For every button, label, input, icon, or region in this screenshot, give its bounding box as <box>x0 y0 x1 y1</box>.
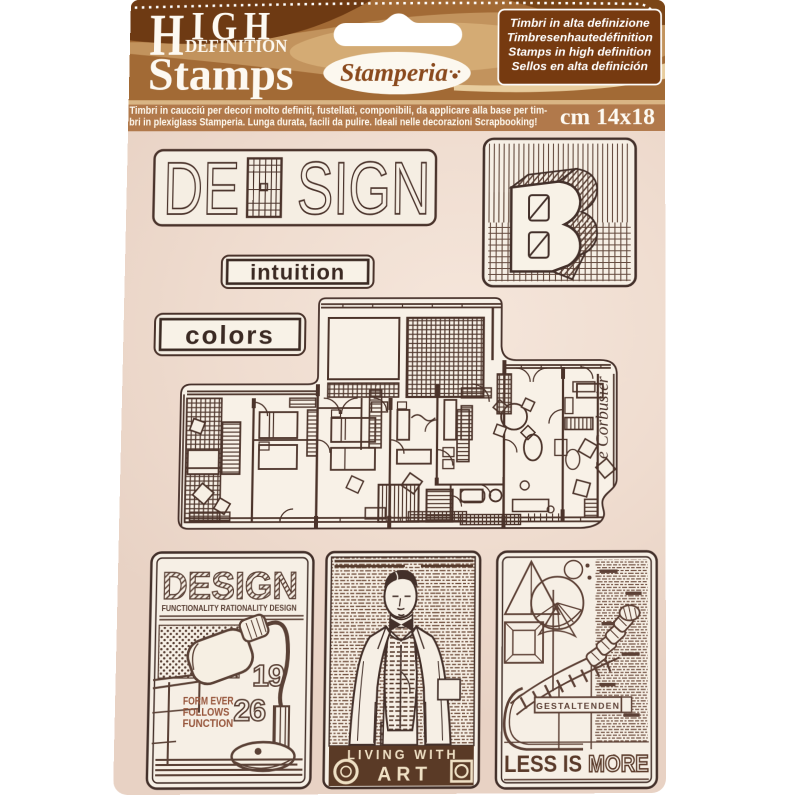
svg-text:LIVING WITH: LIVING WITH <box>347 747 459 762</box>
svg-text:FUNCTIONALITY RATIONALITY DESI: FUNCTIONALITY RATIONALITY DESIGN <box>162 603 298 613</box>
svg-text:ART: ART <box>377 763 432 785</box>
svg-text:DESIGN: DESIGN <box>162 564 299 607</box>
svg-text:Stamperia: Stamperia <box>340 59 449 87</box>
svg-text:cm 14x18: cm 14x18 <box>560 104 655 130</box>
svg-text:Stamps in high definition: Stamps in high definition <box>508 45 651 59</box>
svg-text:intuition: intuition <box>250 260 345 284</box>
svg-text:19: 19 <box>252 660 285 694</box>
svg-text:DE: DE <box>162 149 240 227</box>
svg-text:Sellos en alta definición: Sellos en alta definición <box>512 59 648 73</box>
svg-text:GESTALTENDEN: GESTALTENDEN <box>536 700 620 711</box>
svg-text:Stamps: Stamps <box>147 49 294 101</box>
svg-text:Timbri in alta definizione: Timbri in alta definizione <box>510 16 650 30</box>
svg-text:LESS IS: LESS IS <box>504 751 582 778</box>
svg-text:MORE: MORE <box>588 750 649 777</box>
svg-text:SIGN: SIGN <box>296 149 430 227</box>
svg-text:FUNCTION: FUNCTION <box>182 717 233 730</box>
svg-text:Timbri in caucciú per decori m: Timbri in caucciú per decori molto defin… <box>129 106 547 117</box>
svg-text:26: 26 <box>233 694 266 728</box>
svg-text:bri in plexiglass Stamperia. L: bri in plexiglass Stamperia. Lunga durat… <box>129 117 537 128</box>
svg-text:Timbresenhautedéfinition: Timbresenhautedéfinition <box>507 30 653 44</box>
